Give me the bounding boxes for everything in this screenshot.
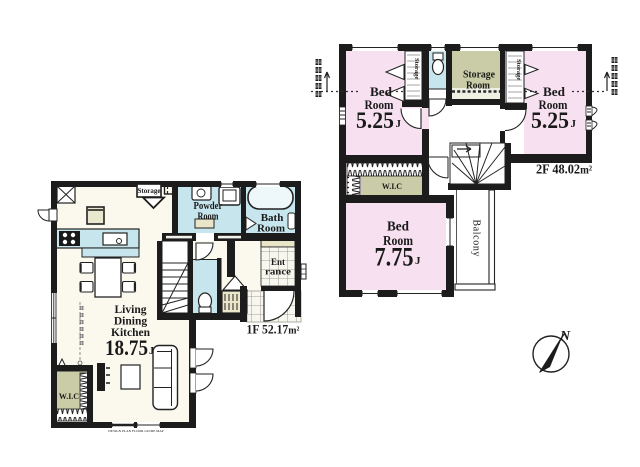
svg-text:J: J: [396, 118, 402, 130]
svg-text:1F 52.17m²: 1F 52.17m²: [247, 322, 301, 337]
svg-text:5.25: 5.25: [531, 108, 569, 133]
svg-text:Bed: Bed: [387, 220, 409, 235]
svg-text:Living: Living: [115, 304, 147, 316]
svg-text:J: J: [571, 118, 577, 130]
svg-text:N: N: [559, 329, 571, 344]
svg-text:7.75: 7.75: [375, 243, 414, 272]
svg-text:2F 48.02m²: 2F 48.02m²: [536, 162, 593, 177]
svg-text:Room: Room: [198, 212, 220, 223]
svg-text:W.I.C: W.I.C: [382, 182, 402, 191]
svg-text:DESIGN PLAN FLOOR GUIDE MAP: DESIGN PLAN FLOOR GUIDE MAP: [108, 429, 163, 433]
svg-text:Storage: Storage: [138, 187, 161, 195]
svg-text:J: J: [149, 346, 154, 357]
svg-text:5.25: 5.25: [356, 108, 394, 133]
svg-text:18.75: 18.75: [105, 335, 148, 360]
svg-text:Balcony: Balcony: [471, 220, 482, 258]
svg-text:J: J: [415, 255, 421, 267]
svg-text:Powder: Powder: [194, 201, 223, 212]
svg-text:Dining: Dining: [114, 316, 147, 328]
svg-text:Room: Room: [466, 80, 490, 92]
svg-text:rance: rance: [265, 267, 291, 277]
svg-text:Storage: Storage: [515, 59, 522, 80]
svg-text:Storage: Storage: [413, 58, 420, 79]
svg-text:W.I.C: W.I.C: [59, 392, 79, 401]
svg-text:Ent: Ent: [271, 257, 285, 267]
svg-text:Room: Room: [257, 223, 285, 235]
